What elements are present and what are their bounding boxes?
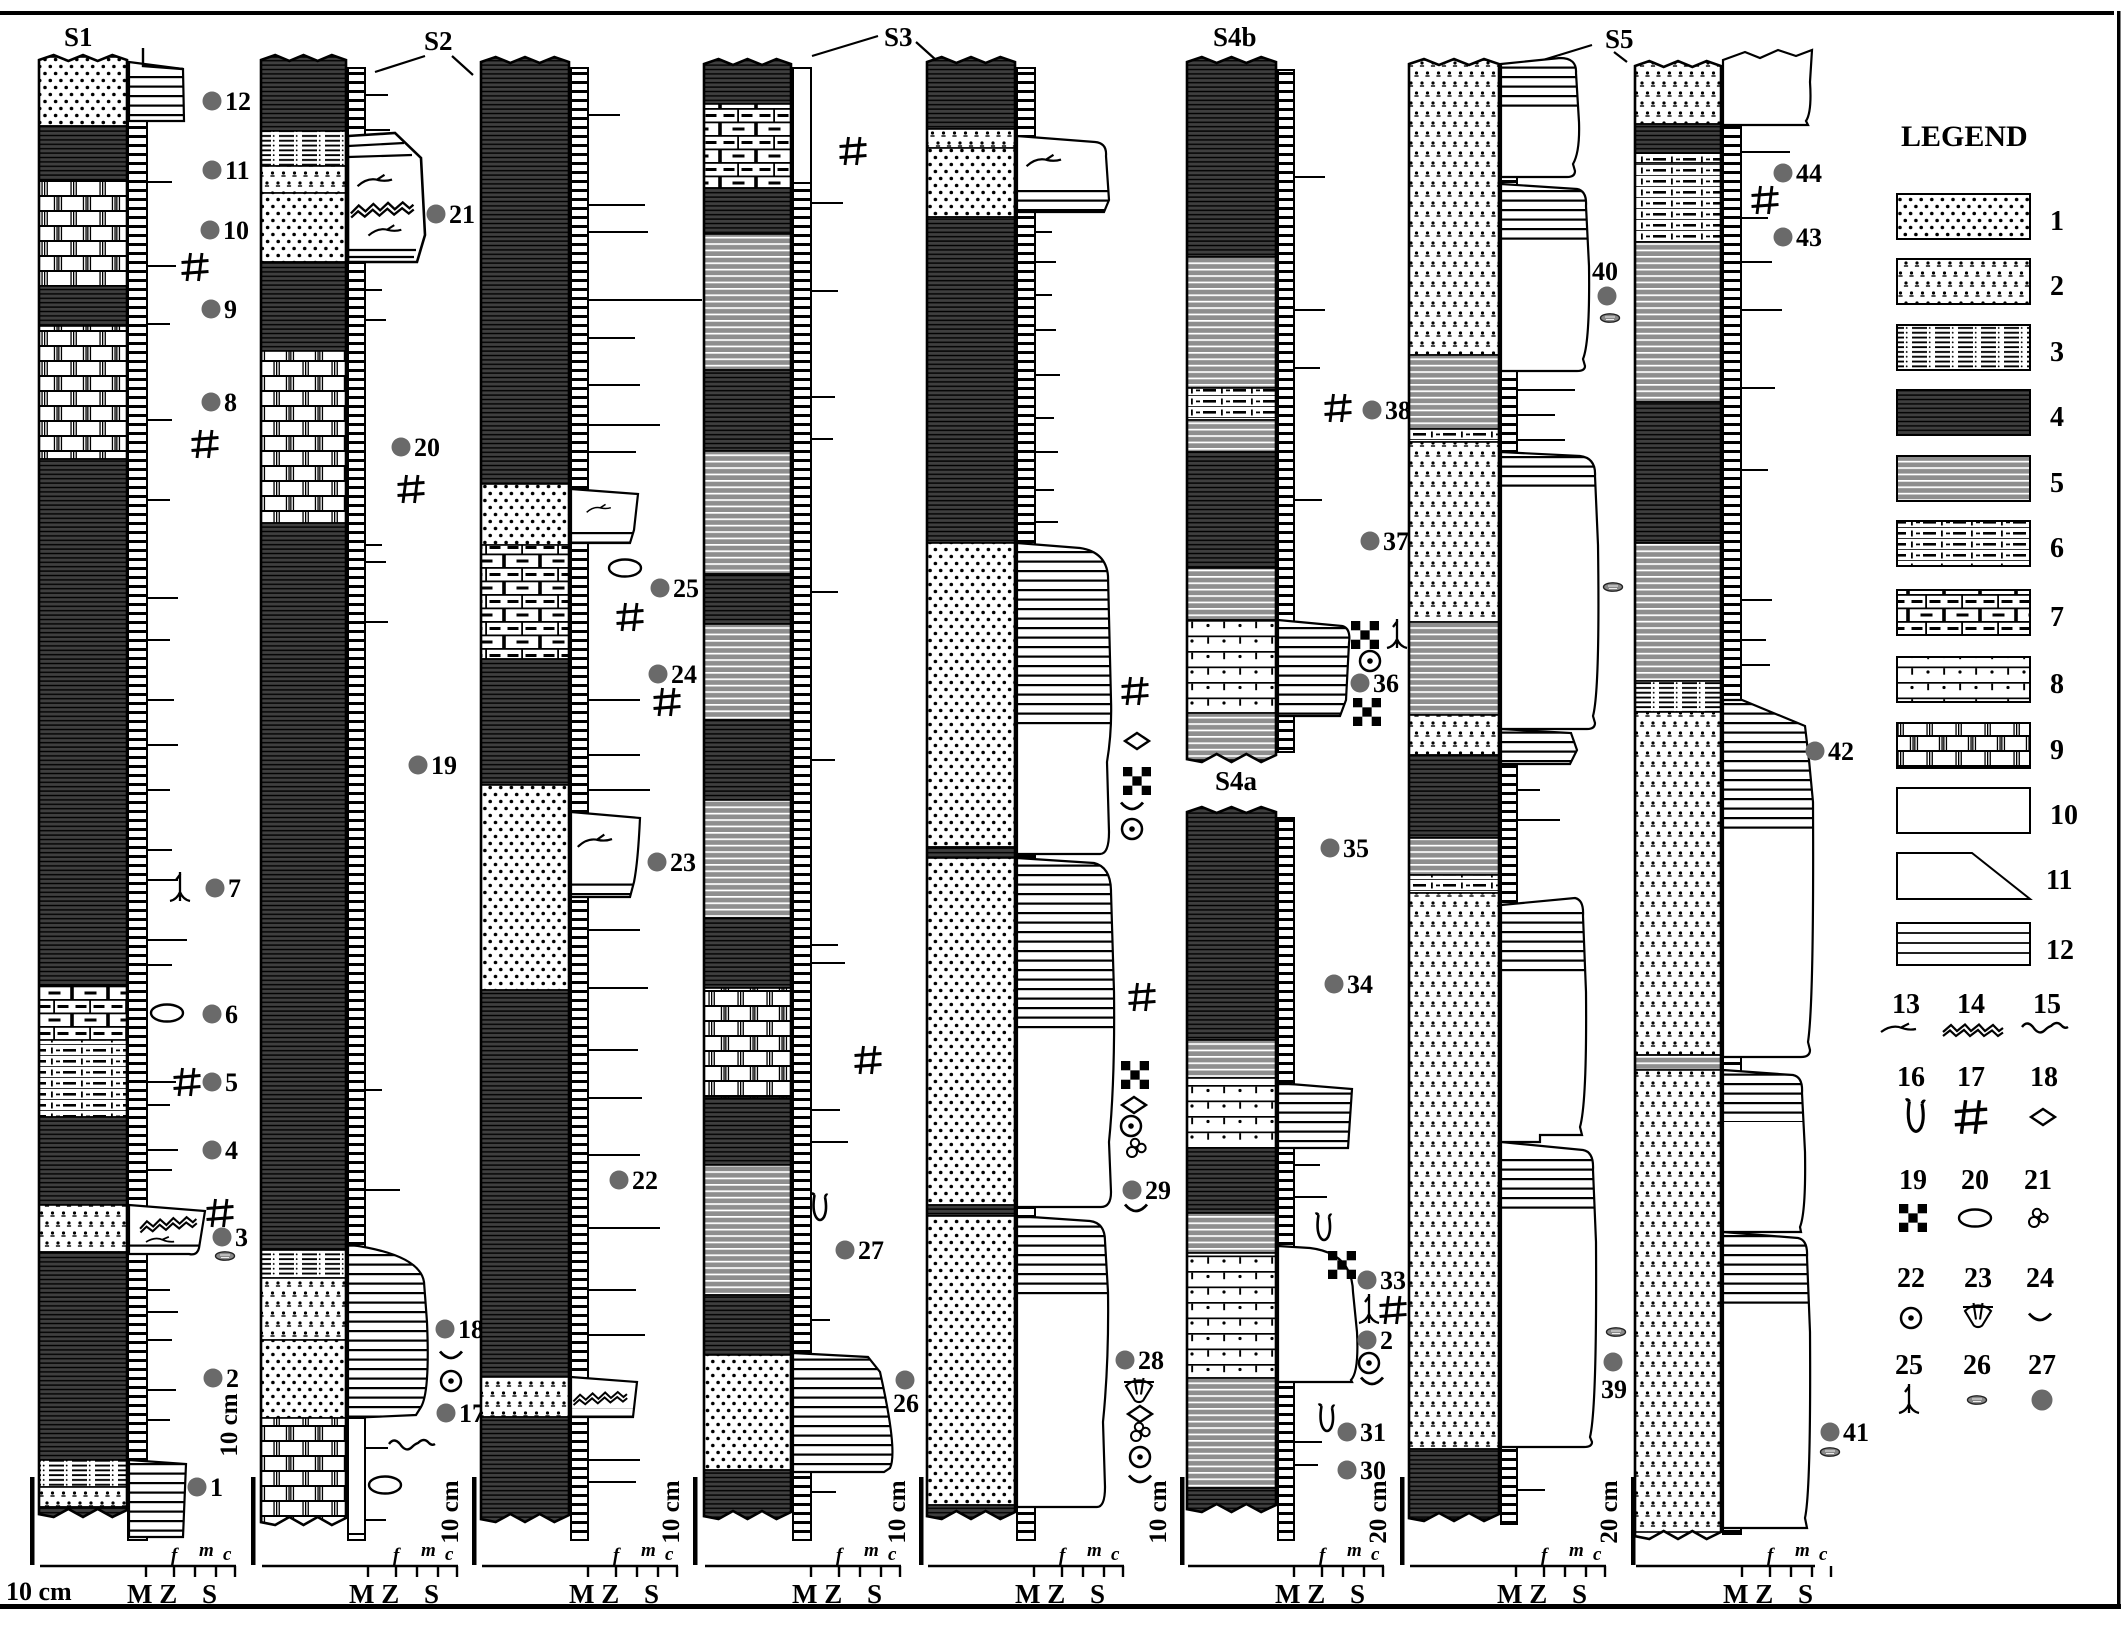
svg-text:LEGEND: LEGEND bbox=[1901, 120, 2028, 153]
svg-text:S: S bbox=[1090, 1579, 1105, 1609]
svg-text:26: 26 bbox=[893, 1389, 919, 1418]
svg-text:4: 4 bbox=[2050, 402, 2064, 433]
svg-text:10 cm: 10 cm bbox=[658, 1480, 685, 1543]
svg-text:36: 36 bbox=[1373, 669, 1399, 698]
svg-text:S: S bbox=[1798, 1579, 1813, 1609]
svg-text:S: S bbox=[867, 1579, 882, 1609]
svg-text:M Z: M Z bbox=[569, 1579, 619, 1609]
svg-text:c: c bbox=[223, 1544, 232, 1565]
svg-text:7: 7 bbox=[228, 874, 241, 903]
svg-text:28: 28 bbox=[1138, 1346, 1164, 1375]
svg-text:10 cm: 10 cm bbox=[884, 1480, 911, 1543]
svg-text:2: 2 bbox=[226, 1364, 239, 1393]
svg-text:12: 12 bbox=[2046, 935, 2074, 966]
svg-text:c: c bbox=[1371, 1544, 1380, 1565]
svg-text:m: m bbox=[421, 1540, 436, 1561]
svg-text:M Z: M Z bbox=[1275, 1579, 1325, 1609]
svg-text:c: c bbox=[1111, 1544, 1120, 1565]
svg-text:m: m bbox=[1795, 1540, 1810, 1561]
svg-text:5: 5 bbox=[2050, 468, 2064, 499]
svg-text:2: 2 bbox=[1380, 1326, 1393, 1355]
svg-text:M Z: M Z bbox=[1015, 1579, 1065, 1609]
svg-text:M Z: M Z bbox=[792, 1579, 842, 1609]
svg-text:25: 25 bbox=[1895, 1350, 1923, 1381]
svg-text:23: 23 bbox=[1964, 1263, 1992, 1294]
svg-text:m: m bbox=[1347, 1540, 1362, 1561]
svg-text:S: S bbox=[1350, 1579, 1365, 1609]
svg-text:34: 34 bbox=[1347, 970, 1373, 999]
svg-text:11: 11 bbox=[225, 156, 250, 185]
svg-text:31: 31 bbox=[1360, 1418, 1386, 1447]
svg-text:39: 39 bbox=[1601, 1375, 1627, 1404]
svg-text:25: 25 bbox=[673, 574, 699, 603]
svg-text:24: 24 bbox=[671, 660, 697, 689]
svg-text:40: 40 bbox=[1592, 257, 1618, 286]
svg-text:10 cm: 10 cm bbox=[6, 1577, 72, 1606]
svg-text:35: 35 bbox=[1343, 834, 1369, 863]
svg-text:15: 15 bbox=[2033, 989, 2061, 1020]
svg-text:c: c bbox=[665, 1544, 674, 1565]
svg-text:7: 7 bbox=[2050, 602, 2064, 633]
svg-text:11: 11 bbox=[2046, 865, 2072, 896]
svg-text:m: m bbox=[199, 1540, 214, 1561]
svg-text:23: 23 bbox=[670, 848, 696, 877]
svg-text:S5: S5 bbox=[1605, 24, 1634, 54]
svg-text:41: 41 bbox=[1843, 1418, 1869, 1447]
svg-text:20: 20 bbox=[414, 433, 440, 462]
svg-text:37: 37 bbox=[1383, 527, 1409, 556]
svg-text:S4b: S4b bbox=[1213, 22, 1257, 52]
svg-text:10: 10 bbox=[223, 216, 249, 245]
svg-text:6: 6 bbox=[225, 1000, 238, 1029]
svg-text:9: 9 bbox=[2050, 735, 2064, 766]
svg-text:8: 8 bbox=[224, 388, 237, 417]
svg-text:19: 19 bbox=[431, 751, 457, 780]
svg-text:S3: S3 bbox=[884, 22, 913, 52]
svg-text:c: c bbox=[888, 1544, 897, 1565]
svg-text:10: 10 bbox=[2050, 800, 2078, 831]
svg-text:27: 27 bbox=[2028, 1350, 2056, 1381]
svg-text:6: 6 bbox=[2050, 533, 2064, 564]
svg-text:22: 22 bbox=[632, 1166, 658, 1195]
svg-text:c: c bbox=[445, 1544, 454, 1565]
svg-text:18: 18 bbox=[2030, 1062, 2058, 1093]
svg-text:38: 38 bbox=[1385, 396, 1411, 425]
svg-text:S: S bbox=[202, 1579, 217, 1609]
svg-text:20 cm: 20 cm bbox=[1365, 1480, 1392, 1543]
svg-text:S2: S2 bbox=[424, 26, 453, 56]
svg-text:10 cm: 10 cm bbox=[1145, 1480, 1172, 1543]
svg-text:12: 12 bbox=[225, 87, 251, 116]
svg-text:3: 3 bbox=[2050, 337, 2064, 368]
svg-text:13: 13 bbox=[1892, 989, 1920, 1020]
svg-text:16: 16 bbox=[1897, 1062, 1925, 1093]
svg-text:10 cm: 10 cm bbox=[437, 1480, 464, 1543]
svg-text:17: 17 bbox=[1957, 1062, 1985, 1093]
svg-text:M Z: M Z bbox=[349, 1579, 399, 1609]
svg-text:14: 14 bbox=[1957, 989, 1985, 1020]
svg-text:9: 9 bbox=[224, 295, 237, 324]
svg-text:M Z: M Z bbox=[127, 1579, 177, 1609]
svg-text:19: 19 bbox=[1899, 1165, 1927, 1196]
svg-text:S1: S1 bbox=[64, 22, 93, 52]
svg-text:m: m bbox=[1569, 1540, 1584, 1561]
svg-text:8: 8 bbox=[2050, 669, 2064, 700]
svg-text:29: 29 bbox=[1145, 1176, 1171, 1205]
svg-text:2: 2 bbox=[2050, 271, 2064, 302]
svg-text:10 cm: 10 cm bbox=[216, 1393, 243, 1456]
svg-text:44: 44 bbox=[1796, 159, 1822, 188]
svg-text:3: 3 bbox=[235, 1223, 248, 1252]
svg-text:S: S bbox=[1572, 1579, 1587, 1609]
svg-text:c: c bbox=[1593, 1544, 1602, 1565]
svg-text:m: m bbox=[641, 1540, 656, 1561]
svg-text:26: 26 bbox=[1963, 1350, 1991, 1381]
svg-text:27: 27 bbox=[858, 1236, 884, 1265]
svg-text:42: 42 bbox=[1828, 737, 1854, 766]
svg-text:1: 1 bbox=[210, 1473, 223, 1502]
svg-text:c: c bbox=[1819, 1544, 1828, 1565]
svg-text:4: 4 bbox=[225, 1136, 238, 1165]
svg-text:43: 43 bbox=[1796, 223, 1822, 252]
svg-text:33: 33 bbox=[1380, 1266, 1406, 1295]
svg-text:S: S bbox=[644, 1579, 659, 1609]
svg-text:M Z: M Z bbox=[1723, 1579, 1773, 1609]
svg-text:20: 20 bbox=[1961, 1165, 1989, 1196]
svg-text:24: 24 bbox=[2026, 1263, 2054, 1294]
svg-text:1: 1 bbox=[2050, 206, 2064, 237]
svg-text:21: 21 bbox=[2024, 1165, 2052, 1196]
svg-text:M Z: M Z bbox=[1497, 1579, 1547, 1609]
svg-text:20 cm: 20 cm bbox=[1596, 1480, 1623, 1543]
svg-text:22: 22 bbox=[1897, 1263, 1925, 1294]
svg-text:m: m bbox=[1087, 1540, 1102, 1561]
svg-text:S: S bbox=[424, 1579, 439, 1609]
svg-text:21: 21 bbox=[449, 200, 475, 229]
svg-text:5: 5 bbox=[225, 1068, 238, 1097]
svg-text:S4a: S4a bbox=[1215, 766, 1258, 796]
svg-text:m: m bbox=[864, 1540, 879, 1561]
